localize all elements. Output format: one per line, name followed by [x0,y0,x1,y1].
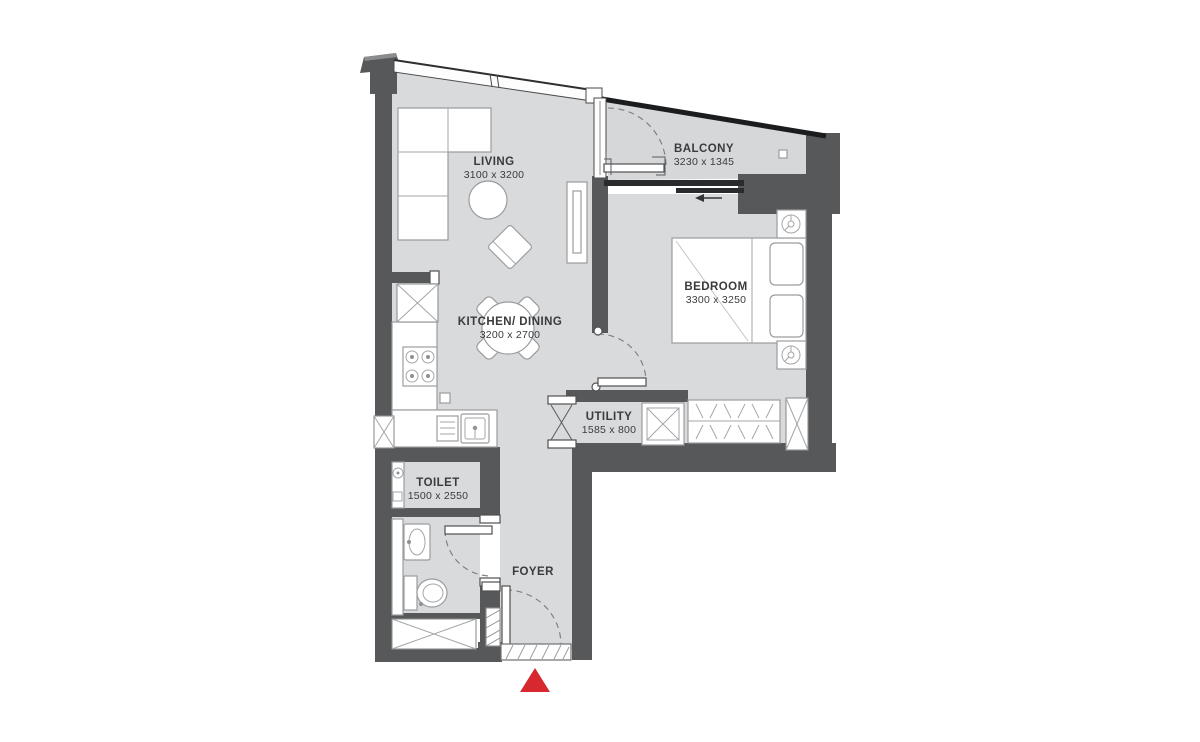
bedroom-door-jamb-top [594,327,602,335]
utility-dims: 1585 x 800 [582,424,636,436]
duct-shaft-bottom-left [392,619,476,649]
balcony-bedroom-corner-block [738,174,808,214]
entrance-door-leaf [502,586,510,646]
right-wall [806,212,832,472]
toilet-bottom-wall [392,613,480,619]
bedroom-name: BEDROOM [684,281,747,293]
nightstand [777,210,806,238]
wc-tank [404,576,417,610]
counter-box [440,393,450,403]
living-dims: 3100 x 3200 [464,169,525,181]
sliding-door-panel [676,188,744,193]
bifold-jamb-top [548,396,576,404]
toilet-name: TOILET [416,477,459,489]
bifold-jamb-bottom [548,440,576,448]
toilet-door-jamb-top [480,515,500,523]
room-label-bedroom: BEDROOM 3300 x 3250 [684,281,747,306]
dining-table [482,302,534,354]
room-label-utility: UTILITY 1585 x 800 [582,411,636,436]
right-column [806,133,840,214]
coffee-table [469,181,507,219]
shower-divider-wall [392,508,480,517]
shower-head-dot [397,472,400,475]
shower-glass-panel [392,519,403,615]
balcony-drain [779,150,787,158]
living-name: LIVING [473,156,514,168]
room-label-foyer: FOYER [512,566,554,578]
balcony-dims: 3230 x 1345 [674,156,735,168]
foyer-right-wall [572,447,592,660]
pillow [770,243,803,285]
left-wall [375,66,392,662]
kitchen-dims: 3200 x 2700 [480,329,541,341]
room-label-balcony: BALCONY 3230 x 1345 [674,143,735,168]
dining-set [475,295,541,361]
balcony-door-leaf [604,164,664,172]
washbasin-tap [407,540,411,544]
bedroom-dims: 3300 x 3250 [686,294,747,306]
floor-plan: LIVING 3100 x 3200 BALCONY 3230 x 1345 B… [0,0,1200,742]
utility-top-wall [566,390,688,402]
floor-plan-canvas: LIVING 3100 x 3200 BALCONY 3230 x 1345 B… [0,0,1200,742]
toilet-right-wall-upper [480,447,500,520]
foyer-name: FOYER [512,566,554,578]
kitchen-name: KITCHEN/ DINING [458,316,563,328]
foyer-duct-jamb [482,582,500,591]
tv-panel [573,191,581,253]
toilet-door-leaf [445,526,492,534]
room-label-toilet: TOILET 1500 x 2550 [408,477,469,502]
duct-shaft-bedroom [786,398,808,450]
pillow [770,295,803,337]
sliding-door-track [604,180,744,186]
stub-wall-cap [430,271,439,284]
living-kitchen-stub-wall [388,272,434,283]
wc-flush [419,602,423,606]
toilet-dims: 1500 x 2550 [408,490,469,502]
nightstand [777,341,806,369]
top-left-column [370,60,397,94]
utility-name: UTILITY [586,411,633,423]
duct-shaft-left [374,416,394,448]
bedroom-door-leaf [598,378,646,386]
entrance-triangle-marker [520,668,550,692]
balcony-name: BALCONY [674,143,734,155]
utility-fixtures [642,403,684,445]
bedroom-west-wall [592,176,608,333]
